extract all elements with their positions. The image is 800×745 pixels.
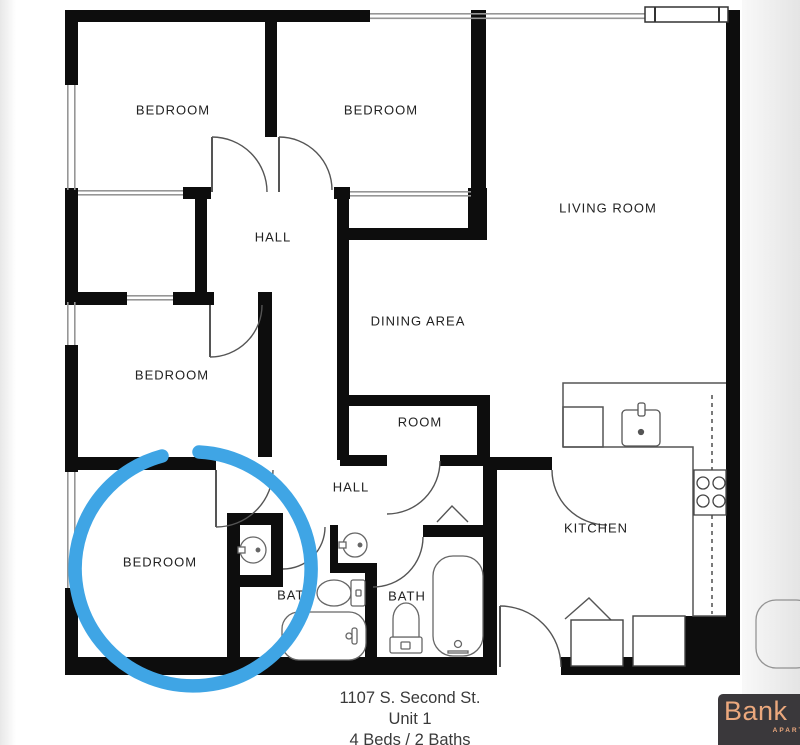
toilet-icon (390, 603, 422, 653)
room-label-bedroom-top-left: BEDROOM (136, 103, 210, 118)
windows (67, 13, 645, 588)
address-line: 1107 S. Second St. (270, 688, 550, 709)
bathtub-icon (433, 556, 483, 656)
margin-tub-shape (756, 600, 800, 668)
toilet-icon (317, 580, 365, 606)
footer-caption: 1107 S. Second St. Unit 1 4 Beds / 2 Bat… (270, 688, 550, 745)
unit-line: Unit 1 (270, 709, 550, 730)
room-label-kitchen: KITCHEN (564, 521, 628, 536)
beds-baths-line: 4 Beds / 2 Baths (270, 730, 550, 745)
room-label-living-room: LIVING ROOM (559, 201, 657, 216)
bank-apartments-logo: Bank APARTM (718, 694, 800, 745)
sink-icon (339, 533, 367, 557)
room-label-bath-left: BATH (277, 588, 315, 603)
floor-plan-screenshot: BEDROOM BEDROOM LIVING ROOM HALL DINING … (0, 0, 800, 745)
sink-icon (238, 537, 266, 563)
room-label-room: ROOM (398, 415, 442, 430)
stove-icon (694, 470, 726, 515)
room-label-bedroom-middle-left: BEDROOM (135, 368, 209, 383)
room-label-hall-lower: HALL (333, 480, 370, 495)
logo-subtext: APARTM (724, 727, 800, 734)
top-window (645, 7, 728, 22)
logo-brand-text: Bank (724, 696, 800, 726)
room-label-bath-right: BATH (388, 589, 426, 604)
room-label-dining-area: DINING AREA (371, 314, 466, 329)
room-label-bedroom-bottom-left: BEDROOM (123, 555, 197, 570)
bathtub-icon (282, 612, 366, 660)
room-label-bedroom-top-middle: BEDROOM (344, 103, 418, 118)
room-label-hall-upper: HALL (255, 230, 292, 245)
kitchen-sink-icon (622, 403, 660, 446)
